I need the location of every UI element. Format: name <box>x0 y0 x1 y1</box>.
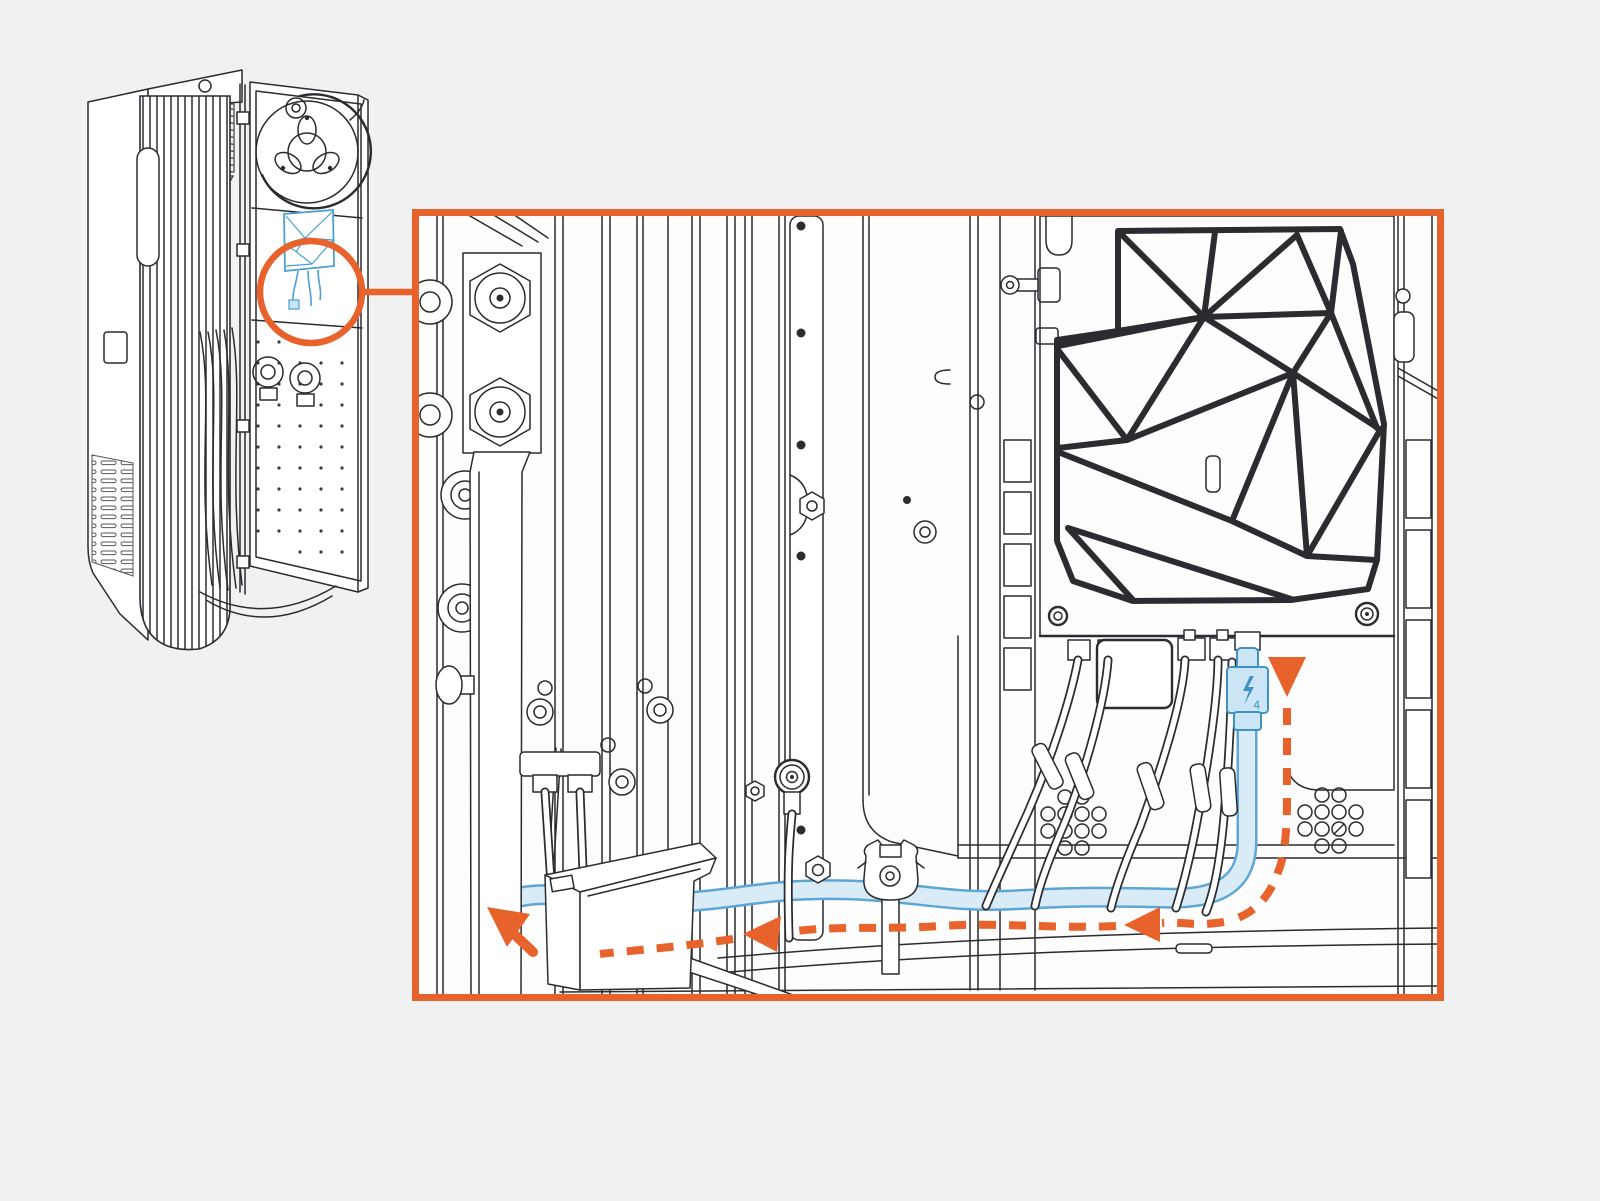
retention-knob <box>436 666 462 704</box>
screw-rail <box>790 216 824 940</box>
thunderbolt-port-label: 4 <box>1253 698 1260 712</box>
perforated-door-panel <box>252 334 352 566</box>
machine-overview <box>88 70 371 650</box>
tray-handle <box>1176 944 1212 953</box>
hex-nut <box>800 492 824 520</box>
illustration-canvas: 4 <box>0 0 1600 1201</box>
louver-vent <box>92 455 133 576</box>
lattice-handle-slot <box>1206 456 1220 492</box>
column-slot <box>137 148 159 266</box>
scene-svg: 4 <box>0 0 1600 1201</box>
